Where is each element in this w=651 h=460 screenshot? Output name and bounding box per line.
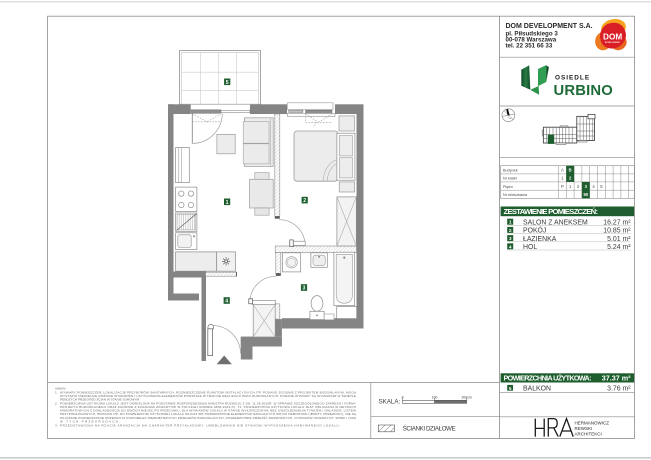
svg-text:DOM DEVELOPMENT S.A.: DOM DEVELOPMENT S.A. [506,23,593,30]
svg-text:3: 3 [303,286,306,292]
svg-text:2: 2 [303,198,306,204]
svg-text:100: 100 [432,395,438,399]
svg-text:DEVELOPMENT: DEVELOPMENT [605,42,621,44]
svg-text:DOM: DOM [603,32,622,41]
svg-text:Nr klatki: Nr klatki [503,177,517,181]
svg-text:3.: 3. [55,423,58,427]
svg-text:200cm: 200cm [462,395,472,399]
svg-text:PRZEDSTAWIONA NA RZUCIE ARANŻA: PRZEDSTAWIONA NA RZUCIE ARANŻACJA MA CHA… [60,422,340,427]
svg-text:P: P [561,184,564,189]
svg-text:HERMANOWICZ: HERMANOWICZ [575,420,610,425]
svg-text:3.76 m²: 3.76 m² [607,385,631,392]
svg-text:1.: 1. [55,390,58,394]
svg-text:tel. 22 351 66 33: tel. 22 351 66 33 [506,43,553,50]
svg-text:1: 1 [226,200,229,206]
svg-text:OSIEDLE: OSIEDLE [555,75,592,82]
svg-text:Budynek: Budynek [503,169,518,173]
svg-text:A: A [561,168,564,173]
svg-text:5: 5 [509,386,512,391]
svg-text:2.: 2. [55,401,58,405]
svg-text:5: 5 [226,80,229,86]
svg-text:Nr mieszkania: Nr mieszkania [503,193,528,197]
svg-text:WLICZANE POWIERZCHNIE PRZEKROJ: WLICZANE POWIERZCHNIE PRZEKROJU POZIOMEG… [60,415,356,420]
svg-text:ZESTAWIENIE POMIESZCZEŃ:: ZESTAWIENIE POMIESZCZEŃ: [504,207,599,216]
svg-text:3: 3 [509,236,512,242]
svg-text:B: B [569,168,572,173]
svg-text:ARCHITEKCI: ARCHITEKCI [575,432,602,437]
svg-text:37.37 m²: 37.37 m² [602,373,631,382]
svg-text:REWSKI: REWSKI [575,426,593,431]
svg-text:2: 2 [509,228,512,234]
svg-text:4: 4 [225,299,228,305]
svg-text:1: 1 [509,220,512,226]
svg-text:POWIERZCHNIA UŻYTKOWA:: POWIERZCHNIA UŻYTKOWA: [504,373,592,382]
svg-text:4: 4 [509,244,512,250]
svg-text:ŚCIANKI DZIAŁOWE: ŚCIANKI DZIAŁOWE [403,425,456,433]
svg-text:POKÓJ: POKÓJ [523,226,546,235]
svg-text:URBINO: URBINO [554,83,615,99]
svg-text:0: 0 [402,395,404,399]
svg-text:50: 50 [583,192,588,197]
svg-text:SKALA:: SKALA: [379,399,401,406]
svg-text:BALKON: BALKON [523,385,551,392]
svg-text:Piętro: Piętro [503,185,513,189]
